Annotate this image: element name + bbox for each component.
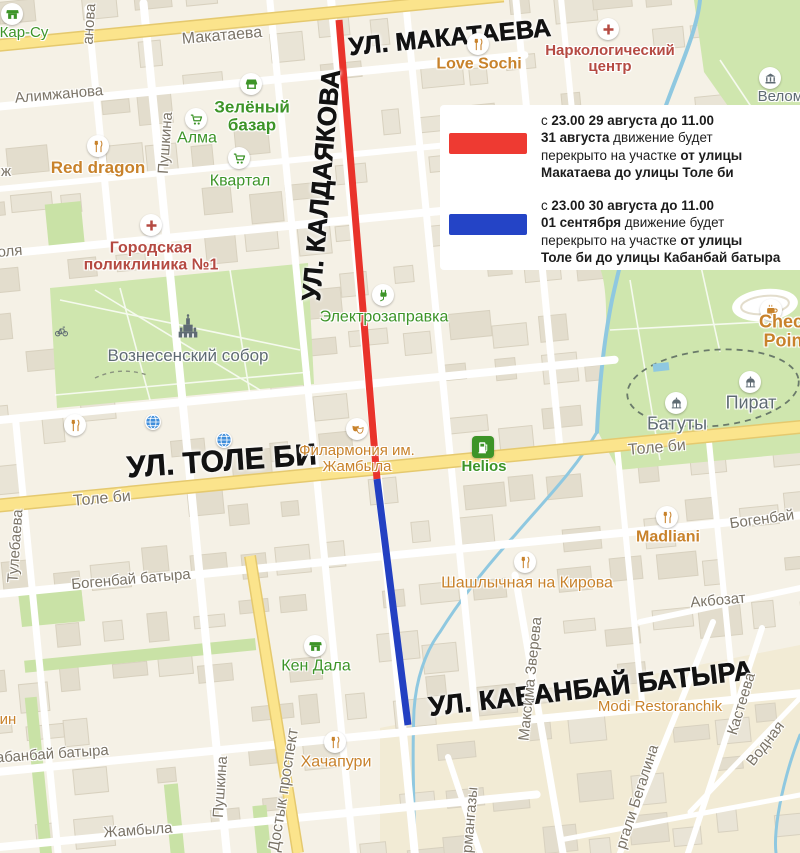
shop-icon-kar-su[interactable] (1, 3, 23, 25)
museum-icon-velomobili[interactable] (759, 67, 781, 89)
fair-icon-batuty[interactable] (665, 392, 687, 414)
medical-icon-narkologichesky-centr[interactable] (597, 18, 619, 40)
legend-red-text: с 23.00 29 августа до 11.0031 августа дв… (541, 112, 797, 182)
fuel-icon-helios[interactable] (472, 436, 494, 458)
street-label-ж: ж (1, 164, 11, 180)
poi-label-voznesensky-sobor[interactable]: Вознесенский собор (107, 347, 268, 365)
poi-label-ken-dala[interactable]: Кен Дала (281, 657, 350, 674)
poi-label-alma[interactable]: Алма (177, 129, 217, 146)
plug-icon-elektrozapravka[interactable] (372, 284, 394, 306)
cart-icon-alma[interactable] (185, 108, 207, 130)
bike-icon-bike-rental[interactable] (50, 319, 72, 341)
poi-label-filarmonia[interactable]: Филармония им. Жамбыла (299, 443, 415, 475)
poi-label-poi-partial-in[interactable]: ин (0, 712, 16, 728)
poi-label-zeleny-bazar[interactable]: Зелёный базар (214, 99, 290, 136)
poi-label-pirat[interactable]: Пират (726, 393, 777, 412)
fair-icon-pirat[interactable] (739, 371, 761, 393)
poi-label-narkologichesky-centr[interactable]: Наркологический центр (545, 43, 675, 75)
food-icon-shashlychnaya[interactable] (514, 551, 536, 573)
poi-label-modi-restoranchik[interactable]: Modi Restoranchik (598, 699, 722, 715)
street-label-оля: оля (0, 243, 23, 261)
food-icon-red-dragon[interactable] (87, 135, 109, 157)
masks-icon-filarmonia[interactable] (346, 418, 368, 440)
food-icon-food-1[interactable] (64, 414, 86, 436)
food-icon-love-sochi[interactable] (467, 33, 489, 55)
poi-label-helios[interactable]: Helios (461, 459, 506, 475)
poi-label-velomobili[interactable]: Веломоби (758, 89, 800, 105)
poi-label-batuty[interactable]: Батуты (647, 414, 707, 433)
poi-label-kar-su[interactable]: Кар-Су (0, 25, 48, 41)
legend-red-swatch (449, 133, 527, 154)
globe-icon-education-1[interactable] (145, 414, 161, 430)
cart-icon-kvartal[interactable] (228, 147, 250, 169)
map-canvas[interactable]: с 23.00 29 августа до 11.0031 августа дв… (0, 0, 800, 853)
legend-blue-swatch (449, 214, 527, 235)
poi-label-gorodskaya-poliklinika-1[interactable]: Городская поликлиника №1 (84, 240, 219, 275)
poi-label-love-sochi[interactable]: Love Sochi (436, 55, 521, 72)
poi-label-elektrozapravka[interactable]: Электрозаправка (320, 308, 449, 325)
closure-legend-panel: с 23.00 29 августа до 11.0031 августа дв… (440, 105, 800, 270)
legend-blue-text: с 23.00 30 августа до 11.0001 сентября д… (541, 197, 797, 267)
medical-icon-gorodskaya-poliklinika-1[interactable] (140, 214, 162, 236)
poi-label-kvartal[interactable]: Квартал (210, 172, 270, 189)
poi-label-red-dragon[interactable]: Red dragon (51, 159, 145, 177)
poi-label-madliani[interactable]: Madliani (636, 528, 700, 545)
globe-icon-education-2[interactable] (216, 432, 232, 448)
food-icon-khachapuri[interactable] (324, 731, 346, 753)
poi-label-check-point[interactable]: Check Point (759, 313, 800, 352)
market-icon-zeleny-bazar[interactable] (240, 73, 262, 95)
poi-label-khachapuri[interactable]: Хачапури (301, 753, 372, 770)
shop-icon-ken-dala[interactable] (304, 635, 326, 657)
church-icon-voznesensky-sobor[interactable] (171, 310, 205, 344)
food-icon-madliani[interactable] (656, 506, 678, 528)
poi-label-shashlychnaya[interactable]: Шашлычная на Кирова (441, 574, 613, 591)
street-label-анова: анова (80, 3, 99, 45)
